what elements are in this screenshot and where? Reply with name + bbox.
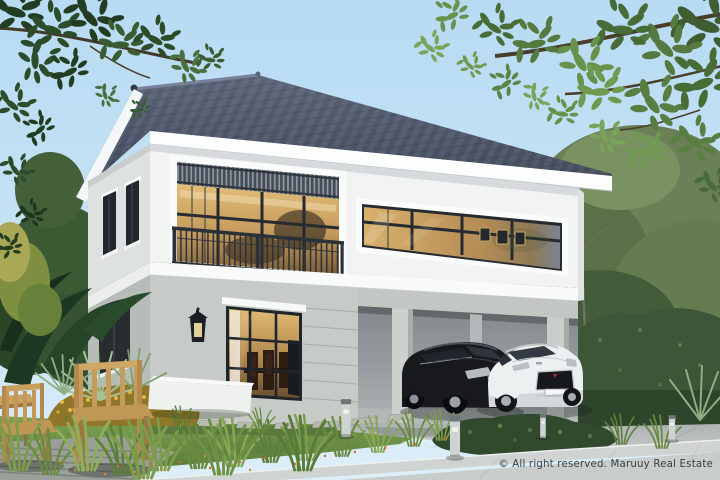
- side-window-upper-1: [101, 187, 118, 260]
- bollard-light: [668, 415, 675, 441]
- planter-box: [148, 376, 254, 419]
- bollard-light: [540, 415, 546, 438]
- hedge-right: [567, 308, 720, 432]
- white-sedan-grille: [536, 370, 574, 390]
- bollard-light: [341, 399, 351, 437]
- balcony: [170, 155, 346, 277]
- watermark-text: © All right reserved. Maruuy Real Estate: [498, 459, 713, 470]
- house-render-photo: © All right reserved. Maruuy Real Estate: [0, 0, 720, 480]
- upper-right-wall-sliver: [578, 188, 584, 301]
- cabinet-silhouette: [288, 340, 299, 396]
- cars: [400, 342, 593, 421]
- bollard-light: [449, 416, 461, 458]
- side-window-upper-2: [124, 176, 141, 251]
